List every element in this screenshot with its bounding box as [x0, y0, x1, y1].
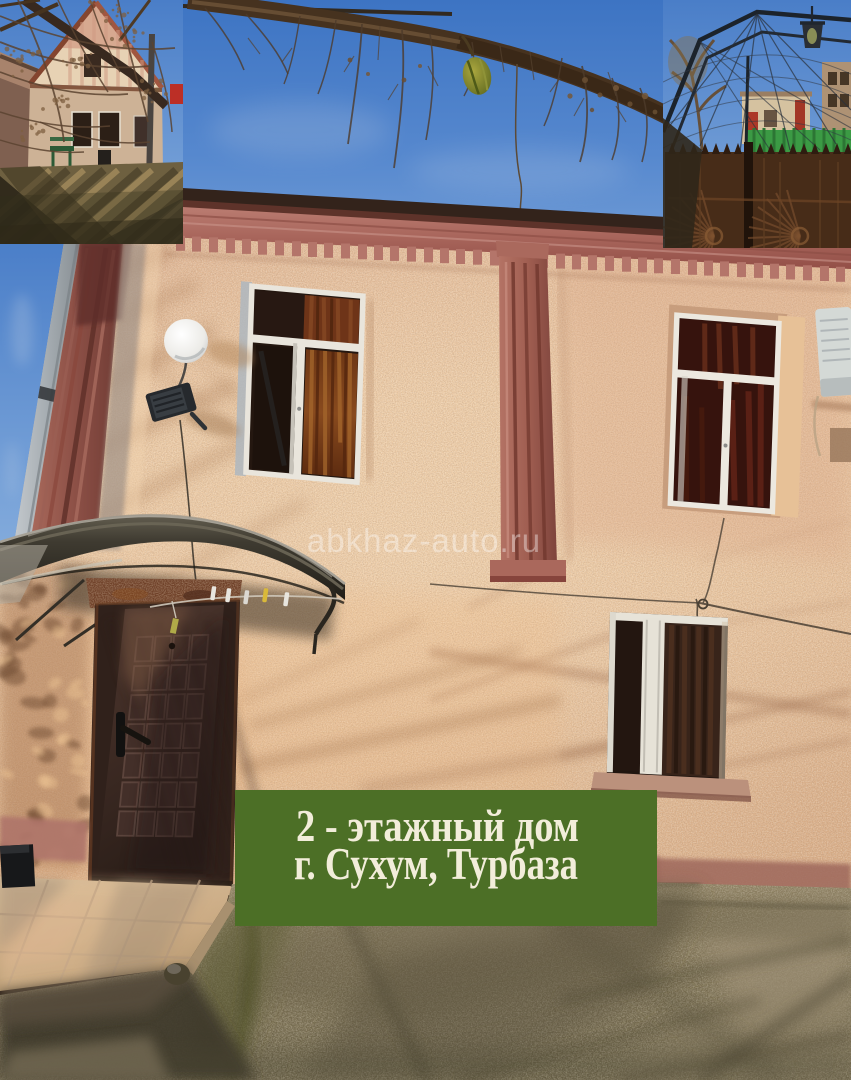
svg-text:abkhaz-auto.ru: abkhaz-auto.ru [307, 522, 541, 559]
svg-text:г. Сухум, Турбаза: г. Сухум, Турбаза [294, 839, 578, 889]
